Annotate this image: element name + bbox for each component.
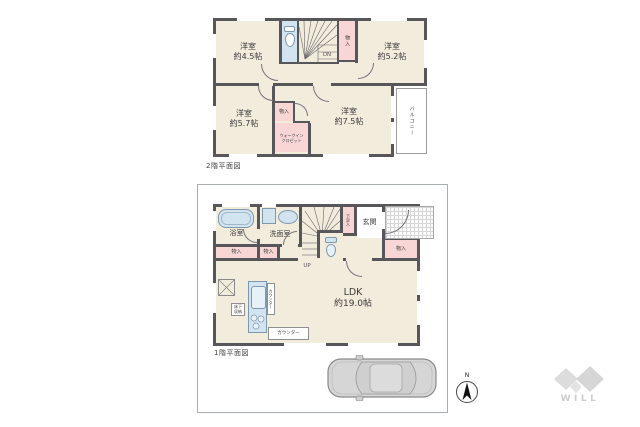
wall xyxy=(279,62,339,64)
balcony-label: バルコニー xyxy=(397,89,426,153)
room-4-5-size: 約4.5帖 xyxy=(234,52,263,62)
storage-2f-top-label: 物入 xyxy=(339,21,355,60)
room-7-5-name: 洋室 xyxy=(341,107,357,117)
window xyxy=(213,211,216,231)
entrance-hall: 玄関 xyxy=(357,207,382,238)
room-5-2-size: 約5.2帖 xyxy=(378,52,407,62)
kitchen-counter-label: カウンター xyxy=(268,284,274,314)
door-opening xyxy=(279,65,282,81)
storage-1f-left-b-label: 物入 xyxy=(260,247,277,258)
stove-icon xyxy=(249,313,266,331)
walk-in-closet: ウォークイン クロゼット xyxy=(275,123,308,152)
bathtub-inner xyxy=(221,212,251,225)
wic-label-line2: クロゼット xyxy=(282,138,302,143)
storage-1f-left-b: 物入 xyxy=(260,247,277,258)
floor1-frame: 浴室 洗面室 物入 物入 下足入 玄関 物入 xyxy=(197,184,448,413)
window xyxy=(213,106,216,130)
wall xyxy=(277,247,280,258)
window xyxy=(391,96,394,118)
window xyxy=(284,343,326,346)
room-5-7-size: 約5.7帖 xyxy=(230,119,259,129)
dining-counter: カウンター xyxy=(268,327,309,340)
underfloor-storage: 床下 収納 xyxy=(231,303,245,316)
stairs-up-label: UP xyxy=(297,262,317,270)
storage-1f-left-a: 物入 xyxy=(216,247,257,258)
window xyxy=(222,204,250,207)
dining-counter-label: カウンター xyxy=(269,328,308,339)
ldk-size: 約19.0帖 xyxy=(334,299,372,310)
window xyxy=(213,283,216,313)
floor1-caption: 1階平面図 xyxy=(214,348,249,358)
wall xyxy=(257,207,260,229)
wall xyxy=(355,21,358,63)
storage-1f-left-a-label: 物入 xyxy=(216,247,257,258)
will-logo-text: WILL xyxy=(548,394,612,404)
kitchen-unit xyxy=(248,281,267,333)
door-opening xyxy=(257,229,260,239)
refrigerator-space-icon xyxy=(218,279,235,296)
room-western-4-5: 洋室 約4.5帖 xyxy=(218,24,278,80)
window xyxy=(417,301,420,325)
storage-2f-top: 物入 xyxy=(339,21,355,60)
toilet-tank-icon xyxy=(284,26,295,32)
room-4-5-name: 洋室 xyxy=(240,42,256,52)
room-western-7-5: 洋室 約7.5帖 xyxy=(311,84,387,150)
room-western-5-7: 洋室 約5.7帖 xyxy=(217,86,271,152)
compass-north-label: N xyxy=(452,372,482,379)
entrance-label: 玄関 xyxy=(357,207,382,238)
window xyxy=(417,271,420,295)
window xyxy=(371,18,407,21)
will-logo: WILL xyxy=(548,366,612,404)
window xyxy=(348,343,398,346)
compass: N xyxy=(452,372,482,405)
stairs-down-label: DN xyxy=(316,51,338,60)
car-icon xyxy=(326,355,438,401)
window xyxy=(391,122,394,144)
underfloor-label-line2: 収納 xyxy=(234,310,242,315)
room-western-5-2: 洋室 約5.2帖 xyxy=(359,24,425,80)
compass-north-icon xyxy=(455,379,479,405)
room-5-2-name: 洋室 xyxy=(384,42,400,52)
shoe-cabinet: 下足入 xyxy=(343,207,354,233)
washing-machine-icon xyxy=(262,208,276,224)
ldk-name: LDK xyxy=(344,287,363,299)
door-opening xyxy=(298,258,320,261)
window xyxy=(229,154,257,157)
storage-1f-right: 物入 xyxy=(385,240,417,258)
window xyxy=(237,18,265,21)
room-5-7-name: 洋室 xyxy=(236,109,252,119)
will-logo-icon xyxy=(548,366,612,394)
storage-1f-right-label: 物入 xyxy=(385,240,417,258)
window xyxy=(262,204,276,207)
shoe-cabinet-label: 下足入 xyxy=(343,207,354,233)
floor2-plan: バルコニー xyxy=(213,18,429,160)
room-ldk: LDK 約19.0帖 xyxy=(303,286,403,312)
window xyxy=(323,154,369,157)
balcony: バルコニー xyxy=(396,88,427,154)
room-7-5-size: 約7.5帖 xyxy=(335,117,364,127)
kitchen-sink-icon xyxy=(251,286,266,309)
storage-2f-mid-label: 物入 xyxy=(275,103,293,121)
wall xyxy=(339,60,355,62)
storage-2f-mid: 物入 xyxy=(275,103,293,121)
window xyxy=(213,34,216,58)
floorplan-canvas: バルコニー xyxy=(0,0,640,427)
floor2-caption: 2階平面図 xyxy=(206,161,241,171)
washbasin-icon xyxy=(278,210,298,224)
toilet-tank-icon xyxy=(325,237,337,243)
kitchen-counter: カウンター xyxy=(267,283,275,315)
